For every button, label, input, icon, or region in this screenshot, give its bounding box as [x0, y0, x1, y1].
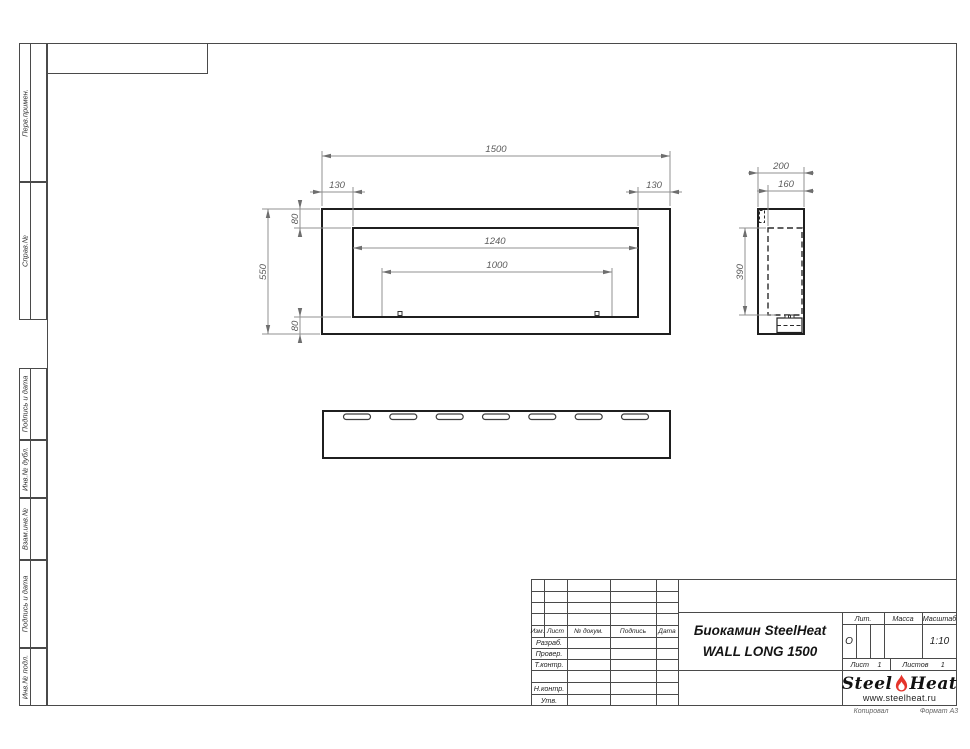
dim-body-depth: 160: [778, 179, 795, 190]
dim-overall-depth: 200: [772, 161, 790, 172]
col-sign: Подпись: [610, 625, 656, 637]
burner-tab-left: [398, 312, 402, 316]
scale-value: 1:10: [922, 624, 957, 658]
sheets-total: Листов 1: [890, 658, 957, 670]
dim-opening-width: 1240: [484, 236, 506, 247]
vent-slot: [436, 414, 463, 420]
row-utv: Утв.: [531, 694, 567, 706]
dim-offset-right: 130: [646, 180, 663, 191]
vent-slot: [483, 414, 510, 420]
col-izm: Изм.: [531, 625, 544, 637]
format-label: Формат А3: [908, 708, 970, 715]
logo-text-steel: Steel: [842, 674, 893, 694]
scale-label: Масштаб: [922, 612, 957, 624]
sheet-label: Лист: [850, 660, 869, 669]
dim-body-height: 390: [735, 263, 746, 280]
row-nkontr: Н.контр.: [531, 682, 567, 694]
dim-overall-width: 1500: [485, 144, 507, 155]
vent-slot: [390, 414, 417, 420]
dim-flange-top: 80: [290, 213, 301, 224]
lit-label: Лит.: [842, 612, 884, 624]
side-view: 200 160 390: [735, 161, 814, 334]
dim-burner-length: 1000: [486, 260, 508, 271]
dim-offset-left: 130: [329, 180, 346, 191]
sheets-value: 1: [941, 660, 945, 669]
drawing-sheet: Перв.примен. Справ.№ Подпись и дата Инв.…: [0, 0, 970, 749]
document-name: Биокамин SteelHeat WALL LONG 1500: [678, 612, 842, 670]
flame-icon: [894, 674, 909, 694]
vent-slot: [575, 414, 602, 420]
document-name-line2: WALL LONG 1500: [703, 641, 818, 662]
sheet-number: Лист 1: [842, 658, 890, 670]
lit-value: О: [842, 624, 856, 658]
logo-text-heat: Heat: [910, 674, 958, 694]
vent-slot: [529, 414, 556, 420]
front-view: 1500 130 130 80 80 550: [258, 144, 682, 343]
col-doc: № докум.: [567, 625, 610, 637]
vent-slot: [344, 414, 371, 420]
row-tkontr: Т.контр.: [531, 659, 567, 670]
vent-slot: [622, 414, 649, 420]
dim-flange-bottom: 80: [290, 320, 301, 331]
sheets-label: Листов: [902, 660, 928, 669]
copied-label: Копировал: [840, 708, 902, 715]
col-list: Лист: [544, 625, 567, 637]
row-prover: Провер.: [531, 648, 567, 659]
mass-label: Масса: [884, 612, 922, 624]
steelheat-logo: Steel Heat www.steelheat.ru: [842, 670, 957, 706]
sheet-value: 1: [877, 660, 881, 669]
col-date: Дата: [656, 625, 678, 637]
document-name-line1: Биокамин SteelHeat: [694, 620, 826, 641]
row-razrab: Разраб.: [531, 637, 567, 648]
dim-overall-height: 550: [258, 263, 269, 280]
bottom-view: [323, 411, 670, 458]
logo-url: www.steelheat.ru: [863, 693, 936, 703]
burner-tab-right: [595, 312, 599, 316]
